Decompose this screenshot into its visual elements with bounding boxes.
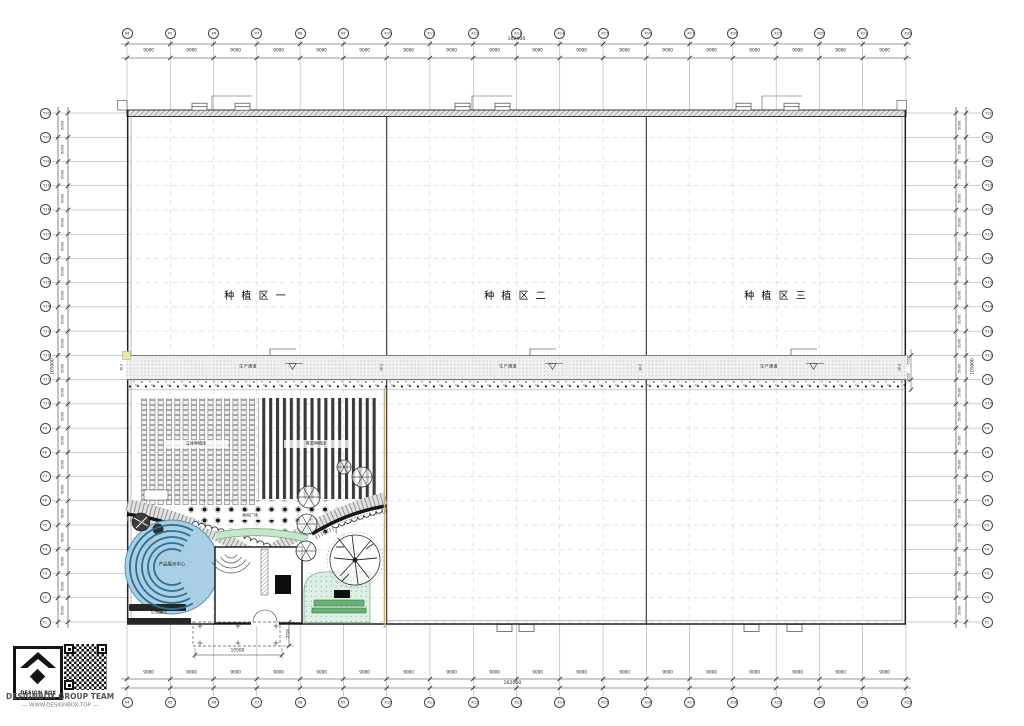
axis-bubble-right-Y9: Y9 <box>982 423 993 434</box>
axis-bubble-right-Y12: Y12 <box>982 350 993 361</box>
axis-bubble-top-X22: X22 <box>901 28 912 39</box>
axis-bubble-bottom-X7: X7 <box>251 697 262 708</box>
axis-bubble-left-Y8: Y8 <box>40 447 51 458</box>
axis-bubble-left-Y10: Y10 <box>40 398 51 409</box>
logo-diamond-icon <box>30 669 46 685</box>
axis-bubble-top-X9: X9 <box>338 28 349 39</box>
axis-bubble-right-Y21: Y21 <box>982 132 993 143</box>
axis-bubble-top-X15: X15 <box>598 28 609 39</box>
axis-bubble-right-Y20: Y20 <box>982 156 993 167</box>
qr-finder-icon <box>64 644 74 654</box>
axis-bubble-left-Y1: Y1 <box>40 617 51 628</box>
axis-bubble-right-Y8: Y8 <box>982 447 993 458</box>
axis-bubble-left-Y19: Y19 <box>40 180 51 191</box>
axis-bubble-top-X7: X7 <box>251 28 262 39</box>
axis-bubble-bottom-X21: X21 <box>857 697 868 708</box>
axis-bubble-right-Y4: Y4 <box>982 544 993 555</box>
axis-bubble-bottom-X14: X14 <box>554 697 565 708</box>
garden-detail <box>125 388 386 646</box>
axis-bubble-left-Y14: Y14 <box>40 301 51 312</box>
axis-bubble-bottom-X10: X10 <box>381 697 392 708</box>
qr-finder-icon <box>64 680 74 690</box>
axis-bubble-top-X13: X13 <box>511 28 522 39</box>
axis-bubble-left-Y21: Y21 <box>40 132 51 143</box>
axis-bubble-left-Y11: Y11 <box>40 374 51 385</box>
axis-bubble-right-Y13: Y13 <box>982 326 993 337</box>
axis-bubble-top-X4: X4 <box>122 28 133 39</box>
brand-site-text: — WWW.DESIGNBOX.TOP — <box>11 702 108 708</box>
production-corridor <box>123 349 907 390</box>
axis-bubble-bottom-X9: X9 <box>338 697 349 708</box>
axis-bubble-left-Y12: Y12 <box>40 350 51 361</box>
axis-bubble-top-X21: X21 <box>857 28 868 39</box>
axis-bubble-top-X16: X16 <box>641 28 652 39</box>
axis-bubble-bottom-X13: X13 <box>511 697 522 708</box>
axis-bubble-top-X6: X6 <box>208 28 219 39</box>
axis-bubble-bottom-X19: X19 <box>771 697 782 708</box>
hedge-wall <box>129 604 186 611</box>
axis-bubble-right-Y3: Y3 <box>982 568 993 579</box>
axis-bubble-right-Y19: Y19 <box>982 180 993 191</box>
axis-bubble-right-Y7: Y7 <box>982 471 993 482</box>
axis-bubble-right-Y14: Y14 <box>982 301 993 312</box>
axis-bubble-bottom-X17: X17 <box>684 697 695 708</box>
axis-bubble-left-Y3: Y3 <box>40 568 51 579</box>
axis-bubble-left-Y9: Y9 <box>40 423 51 434</box>
axis-bubble-left-Y7: Y7 <box>40 471 51 482</box>
qr-code <box>64 644 107 690</box>
axis-bubble-right-Y10: Y10 <box>982 398 993 409</box>
axis-bubble-right-Y5: Y5 <box>982 520 993 531</box>
axis-bubble-bottom-X20: X20 <box>814 697 825 708</box>
axis-bubble-top-X20: X20 <box>814 28 825 39</box>
axis-bubble-left-Y13: Y13 <box>40 326 51 337</box>
axis-bubble-right-Y22: Y22 <box>982 108 993 119</box>
axis-bubble-left-Y18: Y18 <box>40 204 51 215</box>
axis-bubble-bottom-X5: X5 <box>165 697 176 708</box>
axis-bubble-top-X10: X10 <box>381 28 392 39</box>
axis-bubble-top-X12: X12 <box>468 28 479 39</box>
axis-bubble-right-Y16: Y16 <box>982 253 993 264</box>
axis-bubble-left-Y17: Y17 <box>40 229 51 240</box>
qr-finder-icon <box>97 644 107 654</box>
brand-team-text: DESIGNBOX GROUP TEAM <box>6 692 114 701</box>
axis-bubble-right-Y15: Y15 <box>982 277 993 288</box>
axis-bubble-bottom-X16: X16 <box>641 697 652 708</box>
axis-bubble-right-Y1: Y1 <box>982 617 993 628</box>
axis-bubble-right-Y18: Y18 <box>982 204 993 215</box>
axis-bubble-bottom-X22: X22 <box>901 697 912 708</box>
axis-bubble-bottom-X18: X18 <box>727 697 738 708</box>
axis-bubble-bottom-X15: X15 <box>598 697 609 708</box>
axis-bubble-left-Y16: Y16 <box>40 253 51 264</box>
axis-bubble-bottom-X8: X8 <box>295 697 306 708</box>
axis-bubble-top-X18: X18 <box>727 28 738 39</box>
axis-bubble-left-Y2: Y2 <box>40 592 51 603</box>
axis-bubble-top-X11: X11 <box>424 28 435 39</box>
axis-bubble-right-Y17: Y17 <box>982 229 993 240</box>
axis-bubble-bottom-X12: X12 <box>468 697 479 708</box>
axis-bubble-right-Y11: Y11 <box>982 374 993 385</box>
axis-bubble-top-X17: X17 <box>684 28 695 39</box>
planting-strip <box>127 382 906 390</box>
axis-bubble-top-X5: X5 <box>165 28 176 39</box>
axis-bubble-top-X8: X8 <box>295 28 306 39</box>
axis-bubble-right-Y6: Y6 <box>982 495 993 506</box>
axis-bubble-left-Y6: Y6 <box>40 495 51 506</box>
axis-bubble-left-Y4: Y4 <box>40 544 51 555</box>
plan-linework <box>0 0 1024 726</box>
axis-bubble-bottom-X6: X6 <box>208 697 219 708</box>
axis-bubble-bottom-X11: X11 <box>424 697 435 708</box>
axis-bubble-right-Y2: Y2 <box>982 592 993 603</box>
axis-bubble-left-Y5: Y5 <box>40 520 51 531</box>
top-wall <box>127 110 906 117</box>
axis-bubble-left-Y22: Y22 <box>40 108 51 119</box>
axis-bubble-top-X14: X14 <box>554 28 565 39</box>
display-center-circle <box>125 520 219 614</box>
axis-bubble-top-X19: X19 <box>771 28 782 39</box>
logo-roof-inner-icon <box>26 659 50 669</box>
axis-bubble-left-Y20: Y20 <box>40 156 51 167</box>
axis-bubble-left-Y15: Y15 <box>40 277 51 288</box>
axis-bubble-bottom-X4: X4 <box>122 697 133 708</box>
site-plan-canvas: DESIGN BOX DESIGNBOX GROUP TEAM — WWW.DE… <box>0 0 1024 726</box>
planting-beds-left <box>141 398 256 505</box>
